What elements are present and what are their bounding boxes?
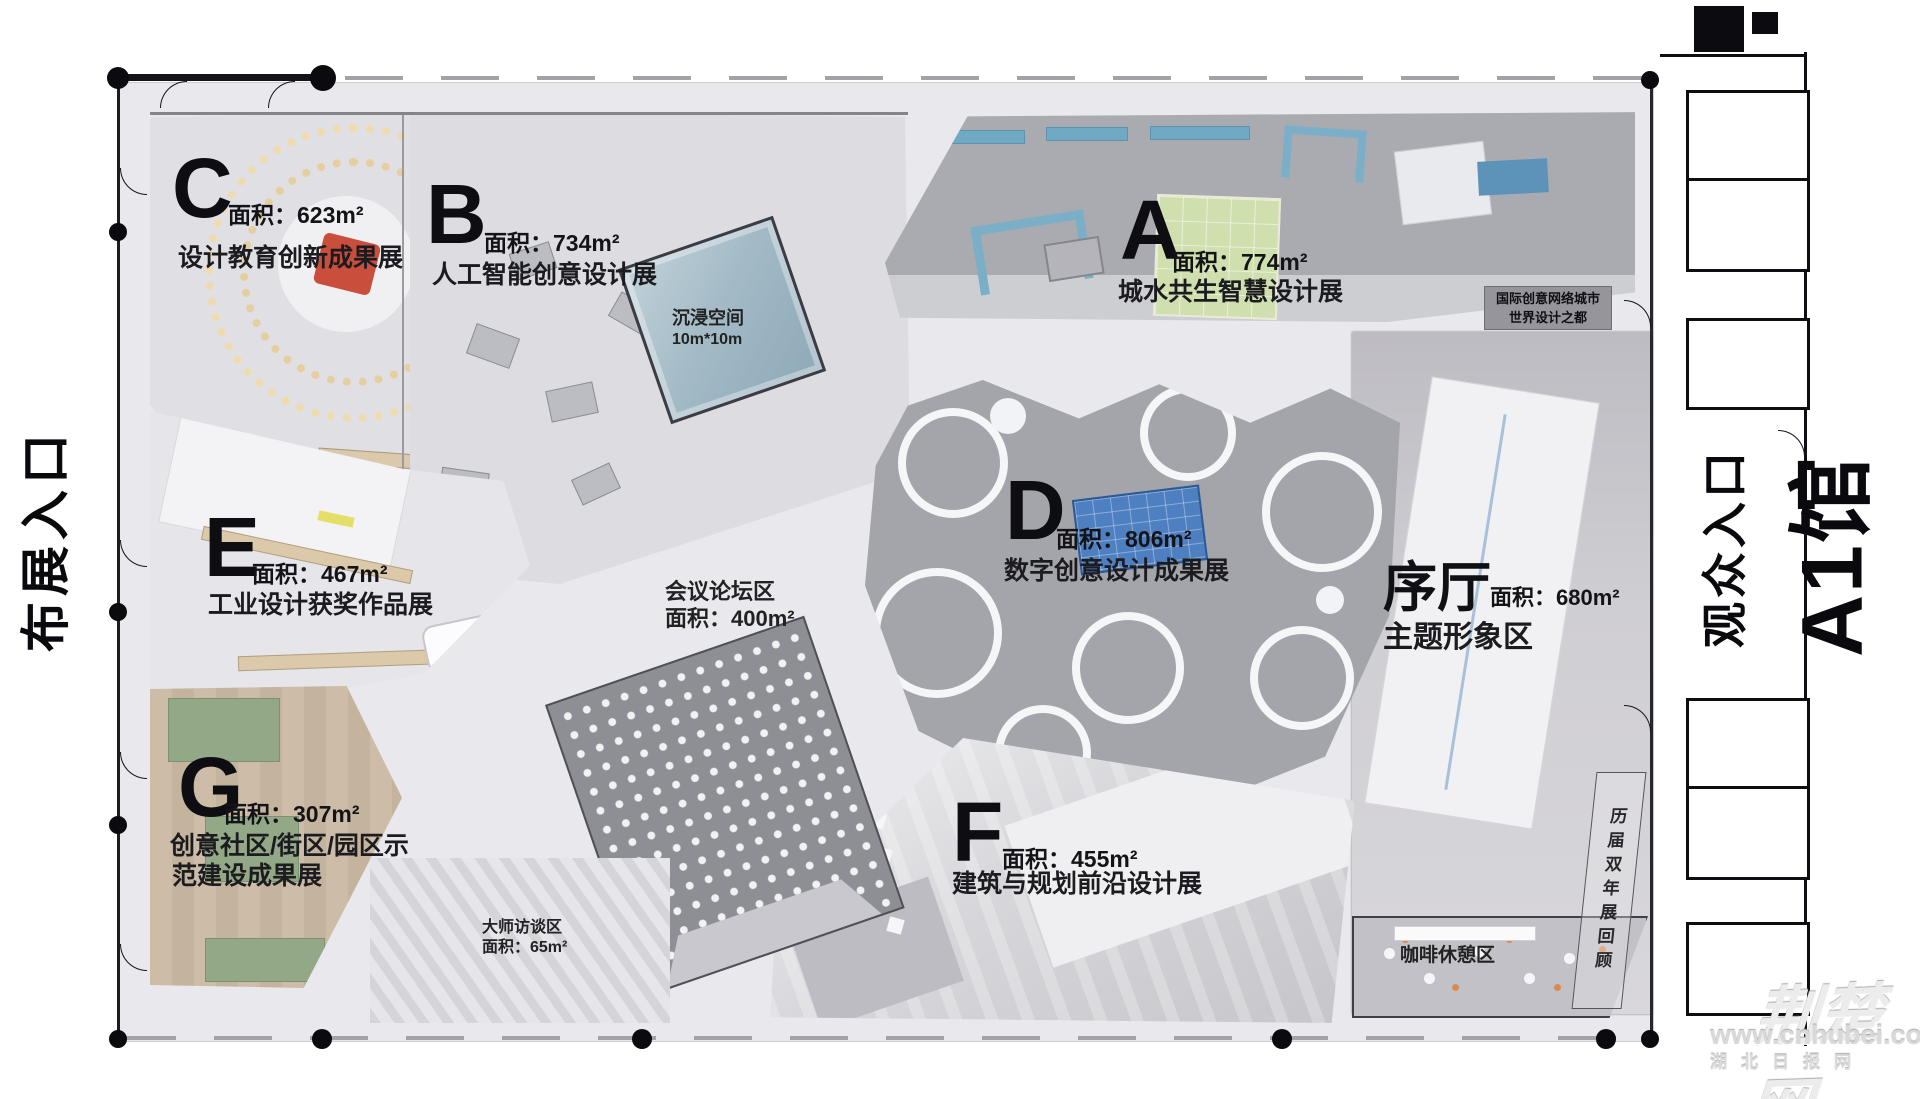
immersive-line1: 沉浸空间 bbox=[672, 308, 744, 329]
side-room bbox=[1686, 318, 1810, 410]
foyer-title: 序厅 bbox=[1383, 543, 1491, 622]
zone-c-letter: C bbox=[172, 146, 233, 230]
immersive-label: 沉浸空间 10m*10m bbox=[672, 308, 744, 350]
column-dot bbox=[109, 223, 127, 241]
cafe-chair bbox=[1452, 984, 1459, 991]
wall-top-dashed bbox=[345, 76, 1650, 80]
badge-line1: 国际创意网络城市 bbox=[1496, 289, 1600, 309]
wall-right-hall bbox=[1650, 80, 1653, 1040]
left-entrance-label: 布展入口 bbox=[6, 428, 78, 652]
master-talk-line1: 大师访谈区 bbox=[482, 918, 567, 938]
exhibit-stand bbox=[466, 323, 520, 369]
column-dot bbox=[312, 1029, 332, 1049]
immersive-line2: 10m*10m bbox=[672, 329, 744, 350]
right-entrance-label: 观众入口 bbox=[1689, 448, 1755, 648]
zone-d-name: 数字创意设计成果展 bbox=[1004, 551, 1229, 587]
cafe-table bbox=[1524, 973, 1535, 984]
zone-a-name: 城水共生智慧设计展 bbox=[1118, 272, 1343, 308]
master-talk-line2: 面积：65m² bbox=[482, 938, 567, 958]
column-dot bbox=[1641, 71, 1659, 89]
wall-bottom-dashed bbox=[118, 1036, 1652, 1040]
foyer-area: 面积：680m² bbox=[1490, 580, 1620, 612]
zone-g-name-line2: 范建设成果展 bbox=[172, 856, 322, 892]
zone-b-area: 面积：734m² bbox=[484, 224, 619, 258]
zone-top-edge-line bbox=[150, 112, 908, 115]
cafe-table bbox=[1384, 948, 1395, 959]
conference-label-line1: 会议论坛区 bbox=[665, 578, 795, 605]
zone-d-region bbox=[865, 380, 1400, 808]
design-city-badge: 国际创意网络城市 世界设计之都 bbox=[1484, 286, 1612, 330]
zone-b-letter: B bbox=[426, 172, 487, 256]
cafe-table bbox=[1564, 953, 1575, 964]
exhibition-floor-plan: 历届双年展回顾 国际创意网络城市 世界设计之都 C 面积：623m² 设计教育创… bbox=[0, 0, 1920, 1099]
column-dot bbox=[632, 1029, 652, 1049]
exhibit-stand bbox=[571, 462, 621, 505]
master-talk-label: 大师访谈区 面积：65m² bbox=[482, 918, 567, 958]
side-room bbox=[1686, 698, 1810, 792]
zone-d-area: 面积：806m² bbox=[1056, 520, 1191, 554]
column-dot bbox=[1641, 1030, 1659, 1048]
zone-f-name: 建筑与规划前沿设计展 bbox=[952, 864, 1202, 900]
exhibit-stand bbox=[545, 381, 599, 422]
column-dot bbox=[1272, 1029, 1292, 1049]
conference-label-line2: 面积：400m² bbox=[665, 605, 795, 632]
side-room bbox=[1686, 90, 1810, 184]
zone-c-area: 面积：623m² bbox=[228, 196, 363, 230]
column-dot bbox=[107, 67, 129, 89]
blue-arch bbox=[1281, 125, 1366, 183]
watermark-caption: 湖北日报网 bbox=[1710, 1048, 1865, 1073]
circle-booth bbox=[1072, 612, 1184, 724]
column-dot bbox=[109, 1030, 127, 1048]
zone-e-area: 面积：467m² bbox=[252, 555, 387, 589]
zone-e-name: 工业设计获奖作品展 bbox=[208, 585, 433, 621]
column-dot bbox=[109, 816, 127, 834]
column-dot bbox=[310, 65, 336, 91]
column-dot bbox=[1596, 1029, 1616, 1049]
zone-c-name: 设计教育创新成果展 bbox=[178, 238, 403, 274]
side-room bbox=[1686, 178, 1810, 272]
small-white-booth bbox=[990, 398, 1026, 434]
column-dot bbox=[109, 603, 127, 621]
zone-g-area: 面积：307m² bbox=[224, 795, 359, 829]
blue-wall-element bbox=[1046, 127, 1128, 141]
green-carpet bbox=[205, 938, 325, 982]
wall-top-right bbox=[1660, 54, 1807, 57]
side-room bbox=[1686, 786, 1810, 880]
foyer-name: 主题形象区 bbox=[1383, 612, 1533, 656]
wall-top-solid bbox=[118, 74, 330, 81]
cafe-table bbox=[1424, 973, 1435, 984]
blue-wall-element bbox=[1150, 126, 1250, 140]
conference-label: 会议论坛区 面积：400m² bbox=[665, 578, 795, 632]
zone-b-name: 人工智能创意设计展 bbox=[432, 255, 657, 291]
badge-line2: 世界设计之都 bbox=[1509, 308, 1587, 328]
structure-block bbox=[1752, 12, 1778, 34]
cafe-chair bbox=[1554, 984, 1561, 991]
blue-table bbox=[1477, 158, 1549, 196]
cafe-label: 咖啡休憩区 bbox=[1400, 940, 1495, 967]
cafe-counter bbox=[1394, 926, 1536, 941]
watermark-url: www.cnhubei.com bbox=[1710, 1020, 1920, 1051]
structure-block bbox=[1694, 6, 1744, 52]
door-swing bbox=[1778, 430, 1805, 457]
zone-f-letter: F bbox=[952, 790, 1003, 874]
biennale-label: 历届双年展回顾 bbox=[1588, 807, 1631, 975]
hall-name-label: A1馆 bbox=[1762, 455, 1887, 657]
